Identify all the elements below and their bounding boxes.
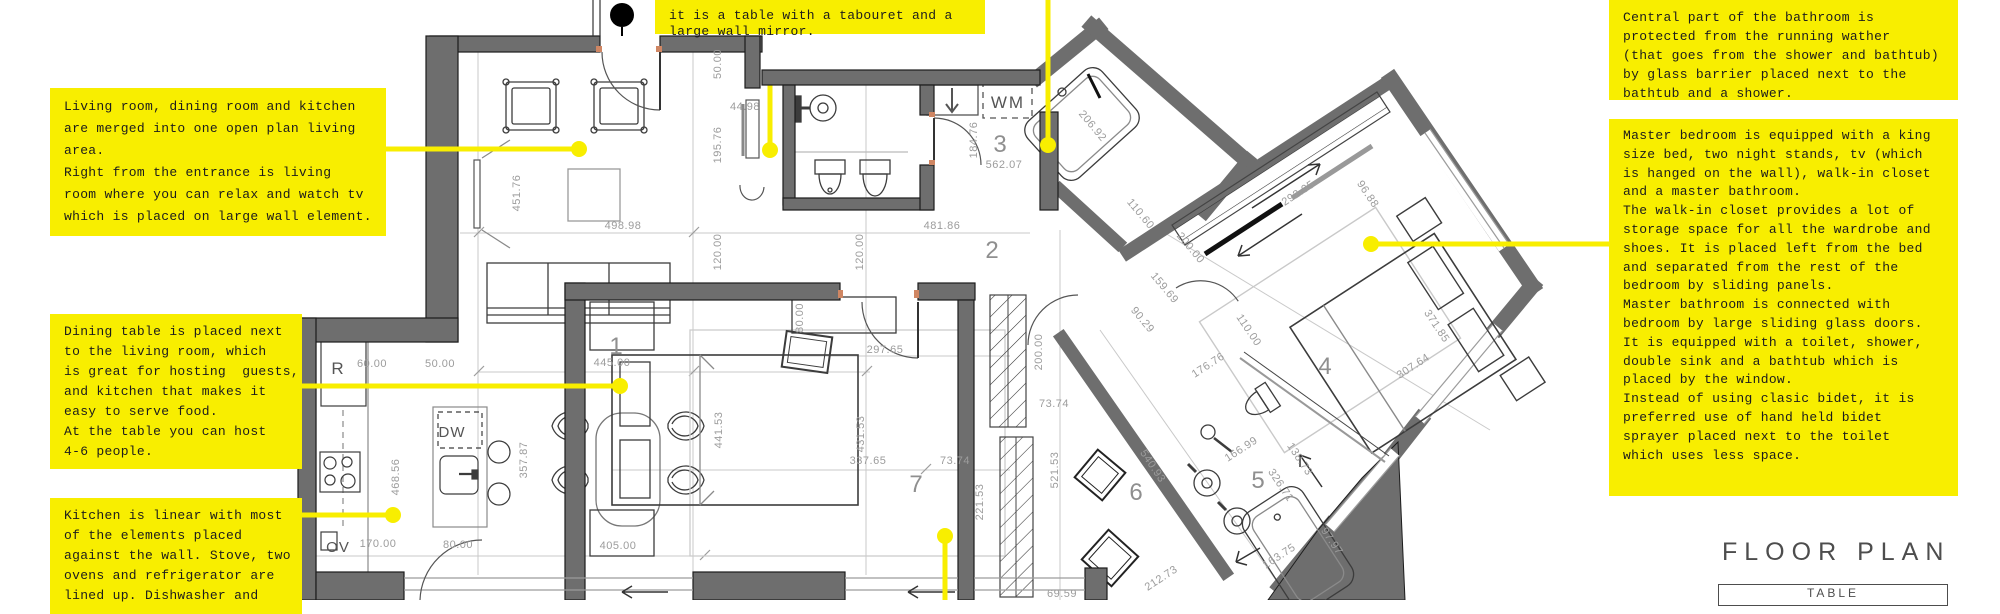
note-line: and separated from the rest of the (1623, 259, 1944, 278)
floor-plan-annotated-screenshot: { "title": { "heading": "FLOOR PLAN", "t… (0, 0, 2000, 600)
note-line: Master bathroom is connected with (1623, 296, 1944, 315)
note-line: lined up. Dishwasher and (64, 586, 288, 606)
note-entrance: it is a table with a tabouret and alarge… (655, 0, 985, 34)
note-line: preferred use of hand held bidet (1623, 409, 1944, 428)
note-line: Right from the entrance is living (64, 162, 372, 184)
note-line: bedroom by large sliding glass doors. (1623, 315, 1944, 334)
note-line: shoes. It is placed left from the bed (1623, 240, 1944, 259)
note-line: Dining table is placed next (64, 322, 288, 342)
note-line: which uses less space. (1623, 447, 1944, 466)
note-line: 4-6 people. (64, 442, 288, 462)
callout-dot (385, 507, 401, 523)
note-line: ovens and refrigerator are (64, 566, 288, 586)
note-line: and kitchen that makes it (64, 382, 288, 402)
callout-dot (571, 141, 587, 157)
note-line: large wall mirror. (669, 24, 971, 40)
callout-dot (937, 528, 953, 544)
note-line: area. (64, 140, 372, 162)
callout-dot (1040, 137, 1056, 153)
note-master-bedroom: Master bedroom is equipped with a kingsi… (1609, 119, 1958, 496)
note-line: (that goes from the shower and bathtub) (1623, 46, 1944, 65)
note-line: of the elements placed (64, 526, 288, 546)
note-line: Central part of the bathroom is (1623, 8, 1944, 27)
note-line: Kitchen is linear with most (64, 506, 288, 526)
note-line: are merged into one open plan living (64, 118, 372, 140)
note-line: against the wall. Stove, two (64, 546, 288, 566)
note-line: The walk-in closet provides a lot of (1623, 202, 1944, 221)
note-living-room: Living room, dining room and kitchenare … (50, 88, 386, 236)
titleblock-table-header: TABLE (1718, 584, 1948, 606)
callout-living (386, 141, 587, 157)
note-line: sprayer placed next to the toilet (1623, 428, 1944, 447)
note-line: Living room, dining room and kitchen (64, 96, 372, 118)
note-line: it is a table with a tabouret and a (669, 8, 971, 24)
callout-bedroom7 (937, 528, 953, 600)
callout-kitchen (302, 507, 401, 523)
note-line: Master bedroom is equipped with a king (1623, 127, 1944, 146)
note-line: is hanged on the wall), walk-in closet (1623, 165, 1944, 184)
note-line: by glass barrier placed next to the (1623, 65, 1944, 84)
drawing-title: FLOOR PLAN (1722, 538, 1982, 567)
note-line: protected from the running wather (1623, 27, 1944, 46)
callout-dot (1363, 236, 1379, 252)
note-line: placed by the window. (1623, 371, 1944, 390)
note-bathroom-glass: Central part of the bathroom isprotected… (1609, 0, 1958, 100)
note-line: Instead of using clasic bidet, it is (1623, 390, 1944, 409)
note-line: is great for hosting guests, (64, 362, 288, 382)
note-line: double sink and a bathtub which is (1623, 353, 1944, 372)
note-line: and a master bathroom. (1623, 183, 1944, 202)
note-line: easy to serve food. (64, 402, 288, 422)
note-line: which is placed on large wall element. (64, 206, 372, 228)
note-line: bathtub and a shower. (1623, 84, 1944, 103)
note-line: size bed, two night stands, tv (which (1623, 146, 1944, 165)
callout-bathtub (1040, 0, 1056, 153)
note-line: to the living room, which (64, 342, 288, 362)
note-dining-table: Dining table is placed nextto the living… (50, 314, 302, 469)
callout-dot (612, 378, 628, 394)
callout-dining (302, 378, 628, 394)
note-line: At the table you can host (64, 422, 288, 442)
note-line: bedroom by sliding panels. (1623, 277, 1944, 296)
note-kitchen: Kitchen is linear with mostof the elemen… (50, 498, 302, 614)
callout-master (1363, 236, 1609, 252)
note-line: room where you can relax and watch tv (64, 184, 372, 206)
note-line: It is equipped with a toilet, shower, (1623, 334, 1944, 353)
note-line: storage space for all the wardrobe and (1623, 221, 1944, 240)
